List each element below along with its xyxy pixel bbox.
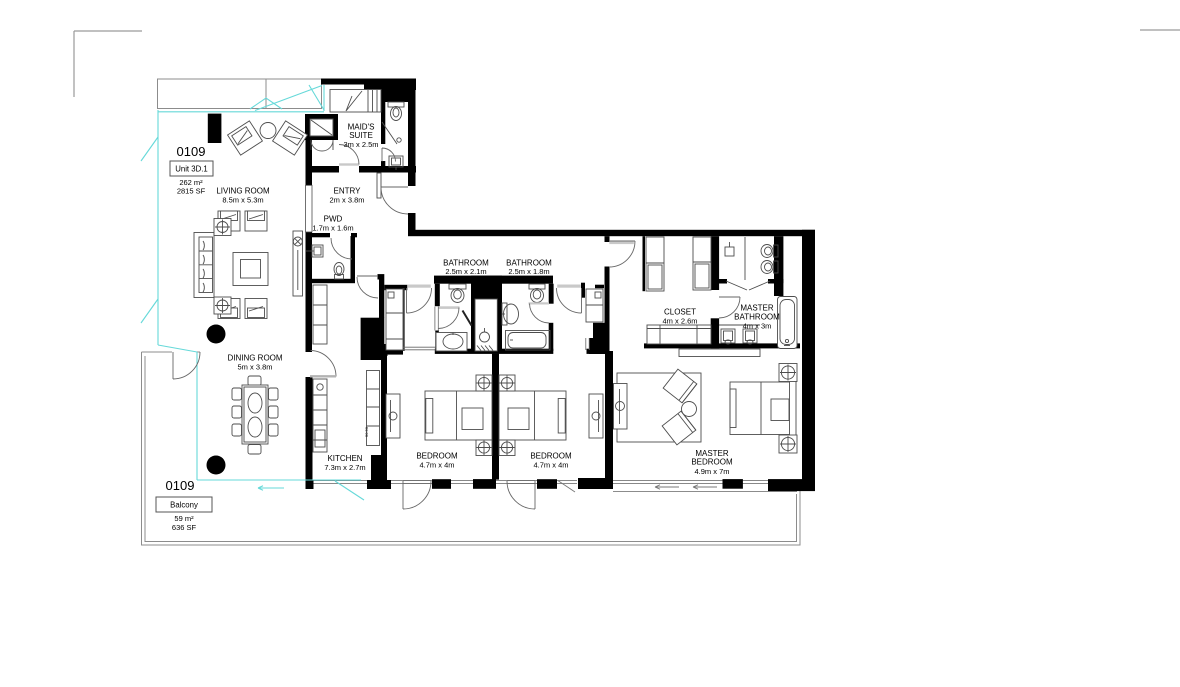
svg-text:KITCHEN: KITCHEN xyxy=(327,454,362,463)
svg-text:SUITE: SUITE xyxy=(349,131,373,140)
svg-text:BATHROOM: BATHROOM xyxy=(734,313,780,322)
svg-text:7.3m x 2.7m: 7.3m x 2.7m xyxy=(324,463,365,472)
svg-text:BEDROOM: BEDROOM xyxy=(530,452,572,461)
svg-text:BEDROOM: BEDROOM xyxy=(416,452,458,461)
svg-text:2.5m x 1.8m: 2.5m x 1.8m xyxy=(508,267,549,276)
svg-text:3m x 2.5m: 3m x 2.5m xyxy=(343,140,378,149)
svg-text:PWD: PWD xyxy=(324,215,343,224)
svg-text:4.7m x 4m: 4.7m x 4m xyxy=(533,461,568,470)
svg-text:2.5m x 2.1m: 2.5m x 2.1m xyxy=(445,267,486,276)
svg-text:2815 SF: 2815 SF xyxy=(177,187,206,196)
svg-text:4.7m x 4m: 4.7m x 4m xyxy=(419,461,454,470)
svg-text:4.9m x 7m: 4.9m x 7m xyxy=(694,467,729,476)
svg-text:5m x 3.8m: 5m x 3.8m xyxy=(237,363,272,372)
svg-text:8.5m x 5.3m: 8.5m x 5.3m xyxy=(222,196,263,205)
svg-text:0109: 0109 xyxy=(177,144,206,159)
svg-text:Unit 3D.1: Unit 3D.1 xyxy=(175,165,208,174)
svg-text:BEDROOM: BEDROOM xyxy=(691,458,733,467)
svg-text:4m x 3m: 4m x 3m xyxy=(743,322,772,331)
svg-text:MASTER: MASTER xyxy=(740,304,774,313)
svg-text:59 m²: 59 m² xyxy=(174,514,194,523)
svg-text:ENTRY: ENTRY xyxy=(334,187,362,196)
svg-text:1.7m x 1.6m: 1.7m x 1.6m xyxy=(312,224,353,233)
svg-text:636 SF: 636 SF xyxy=(172,523,197,532)
svg-text:DINING ROOM: DINING ROOM xyxy=(227,354,282,363)
svg-text:LIVING ROOM: LIVING ROOM xyxy=(216,187,270,196)
svg-text:Balcony: Balcony xyxy=(170,501,198,510)
svg-text:50 50: 50 50 xyxy=(364,426,369,437)
svg-text:CLOSET: CLOSET xyxy=(664,308,696,317)
svg-text:0109: 0109 xyxy=(166,478,195,493)
svg-text:4m x 2.6m: 4m x 2.6m xyxy=(662,317,697,326)
svg-text:2m x 3.8m: 2m x 3.8m xyxy=(329,196,364,205)
